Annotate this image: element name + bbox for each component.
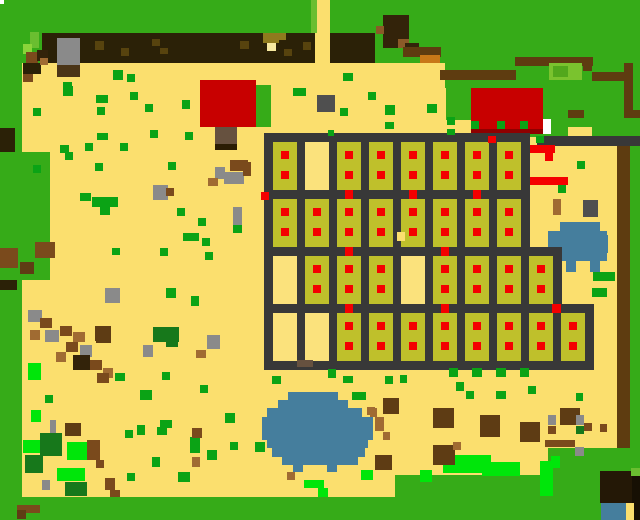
speck-gray [42, 480, 50, 490]
speck-neon [57, 468, 85, 481]
pond-east-3 [600, 235, 608, 253]
crop-plot-planted [497, 199, 521, 247]
crop-plot-empty [401, 256, 425, 304]
speck-neon [551, 456, 560, 468]
speck-weed [385, 105, 395, 115]
house-tree [256, 85, 271, 127]
grass-br-upper [548, 448, 640, 472]
speck-weed [63, 86, 73, 96]
speck-gray [575, 447, 584, 456]
crop [441, 265, 449, 273]
speck-dbrown [152, 39, 160, 46]
pond-east-4 [566, 261, 576, 272]
crop-plot-planted [369, 256, 393, 304]
crop-plot-empty [273, 256, 297, 304]
speck-dark [0, 128, 15, 152]
speck-weed [130, 92, 138, 100]
speck-weed [160, 248, 168, 256]
speck-brown [90, 360, 102, 370]
crop [313, 265, 321, 273]
speck-sand [397, 232, 405, 241]
crop-plot-planted [273, 142, 297, 190]
crop [409, 322, 417, 330]
path-sand-top [317, 0, 330, 33]
speck-weed [150, 130, 158, 138]
crop [409, 208, 417, 216]
speck-weed [100, 207, 110, 215]
speck-weed [385, 376, 393, 384]
crop [537, 285, 545, 293]
speck-brown [548, 426, 556, 434]
crop-plot-planted [497, 313, 521, 361]
speck-weed [352, 392, 366, 400]
crop [537, 265, 545, 273]
speck-dgray [317, 95, 335, 112]
speck-neon [482, 462, 520, 476]
crop [281, 208, 289, 216]
speck-weed [576, 393, 583, 401]
speck-gray [207, 335, 220, 349]
crop [377, 285, 385, 293]
speck-dark [0, 280, 17, 290]
speck-weed [466, 391, 474, 399]
speck-weed [166, 288, 176, 298]
speck-weed [152, 457, 160, 467]
speck-dbrown [284, 49, 292, 56]
speck-dirt [433, 408, 454, 428]
crop [537, 322, 545, 330]
speck-dgreen [166, 337, 178, 347]
speck-weed [198, 218, 206, 226]
speck-dirt [383, 398, 399, 414]
crop [505, 151, 513, 159]
speck-weed [185, 132, 193, 140]
speck-weed [97, 107, 105, 115]
crop [409, 228, 417, 236]
crop [377, 342, 385, 350]
crop-plot-planted [433, 142, 457, 190]
speck-pale [267, 43, 276, 51]
crop-plot-planted [369, 199, 393, 247]
crop [281, 171, 289, 179]
speck-weed [385, 122, 394, 129]
pond-south-5 [267, 440, 368, 448]
speck-weed [157, 427, 167, 435]
speck-weed [140, 390, 152, 400]
speck-dgreen [40, 433, 62, 456]
crop [473, 342, 481, 350]
speck-weed [592, 288, 607, 297]
speck-brown [23, 74, 33, 82]
speck-weed [456, 382, 464, 391]
speck-weed [207, 450, 217, 460]
speck-weed [96, 95, 108, 103]
crop-plot-planted [401, 142, 425, 190]
speck-weed [182, 100, 190, 109]
crop-plot-planted [465, 256, 489, 304]
path-sand-mid [315, 33, 330, 63]
pond-south-3 [267, 408, 362, 417]
speck-weed [255, 442, 265, 452]
speck-brown [0, 248, 18, 268]
speck-weed [520, 368, 529, 377]
crop-plot-planted [497, 142, 521, 190]
fence-g [633, 110, 640, 118]
speck-dbrown [121, 48, 129, 56]
speck-brown [66, 342, 78, 352]
speck-weed [137, 425, 145, 435]
speck-weed [496, 391, 506, 399]
speck-dirt [95, 326, 111, 341]
crop-drip [345, 190, 353, 199]
speck-dirt [20, 262, 34, 274]
crop [505, 322, 513, 330]
crop-drip [473, 190, 481, 199]
speck-brown [110, 490, 120, 497]
crop [441, 151, 449, 159]
crop-plot-empty [305, 142, 329, 190]
house-chimney [215, 127, 237, 144]
speck-dbrown [160, 48, 168, 54]
crop-plot-planted [561, 313, 585, 361]
speck-tan [192, 457, 200, 467]
crop-plot-planted [529, 256, 553, 304]
crop [505, 171, 513, 179]
speck-weed [115, 373, 125, 381]
crop [473, 208, 481, 216]
speck-gray [50, 420, 56, 433]
crop-drip [441, 247, 449, 256]
pond-south-4 [262, 417, 373, 440]
speck-weed [183, 233, 199, 241]
crop-plot-planted [401, 313, 425, 361]
crop [377, 208, 385, 216]
grass-left [0, 33, 22, 520]
crop-plot-planted [369, 142, 393, 190]
speck-tan [453, 442, 461, 450]
fence-d [583, 57, 592, 71]
speck-weed [85, 143, 93, 151]
pond-south-2 [278, 400, 348, 408]
crop [441, 322, 449, 330]
corner-dot [0, 0, 4, 4]
crop-plot-planted [305, 256, 329, 304]
speck-gray [105, 288, 120, 303]
speck-tan [383, 432, 390, 440]
speck-weed [449, 368, 458, 377]
grass-right [630, 146, 640, 472]
speck-brown [243, 162, 251, 176]
farm-map[interactable] [0, 0, 640, 520]
speck-weed [178, 472, 190, 482]
speck-olive [263, 33, 279, 43]
speck-dirt [433, 445, 455, 465]
speck-weed [92, 197, 118, 207]
speck-weed [293, 88, 306, 96]
speck-dirt [480, 415, 500, 437]
speck-weed [328, 130, 334, 136]
crop [473, 228, 481, 236]
pond-south-foot-1 [293, 465, 303, 472]
crop [345, 171, 353, 179]
speck-darkwood [73, 355, 90, 370]
speck-dgray [583, 200, 598, 217]
crop-plot-planted [273, 199, 297, 247]
speck-weed [127, 74, 135, 82]
speck-weed [162, 372, 170, 380]
speck-weed [113, 70, 123, 80]
house [200, 80, 256, 127]
fence-dash [568, 110, 584, 118]
speck-weed [80, 193, 91, 201]
crop-plot-planted [433, 199, 457, 247]
speck-weed [200, 385, 208, 393]
crop [505, 342, 513, 350]
sand-patch-right [568, 127, 592, 136]
speck-dbrown [240, 41, 249, 49]
speck-weed [205, 252, 213, 260]
speck-weed [496, 368, 506, 377]
crop-drip [345, 247, 353, 256]
crop-plot-planted [465, 313, 489, 361]
crop [505, 265, 513, 273]
speck-brown [192, 428, 202, 438]
speck-neon [28, 363, 41, 380]
crop [377, 228, 385, 236]
speck-gray [45, 330, 59, 342]
speck-weed [127, 473, 135, 481]
crop [441, 171, 449, 179]
crop-plot-planted [337, 199, 361, 247]
grass-bottom [22, 497, 640, 520]
crop-plot-planted [529, 313, 553, 361]
speck-dgreen [576, 426, 584, 434]
crop-plot-planted [305, 199, 329, 247]
speck-weed [471, 121, 479, 129]
statue-base [57, 65, 80, 77]
crop [377, 151, 385, 159]
crop [345, 151, 353, 159]
crop-plot-planted [369, 313, 393, 361]
speck-weed [225, 413, 235, 423]
barn [471, 88, 543, 129]
crop [345, 342, 353, 350]
speck-brown [584, 423, 592, 431]
trunk-branch-a [376, 26, 384, 34]
speck-neon [304, 480, 324, 488]
dark-soil-strip-east [330, 33, 375, 63]
speck-dirt [520, 422, 540, 442]
speck-tan [196, 350, 206, 358]
sand-wedge-a [375, 63, 445, 88]
speck-red [530, 177, 568, 185]
speck-olive [278, 33, 286, 40]
speck-brown [545, 440, 575, 447]
speck-weed [536, 136, 544, 143]
speck-red [488, 136, 496, 143]
crop [345, 228, 353, 236]
speck-gray [576, 415, 584, 425]
speck-chimney [297, 360, 313, 367]
cave-water [601, 503, 626, 520]
speck-dbrown [95, 41, 104, 50]
crop [281, 151, 289, 159]
speck-red [261, 192, 269, 200]
crop [441, 228, 449, 236]
speck-tan [287, 472, 295, 480]
crop-plot-planted [433, 313, 457, 361]
crop [377, 322, 385, 330]
speck-weed [95, 163, 103, 171]
speck-weed [177, 208, 185, 216]
speck-weed [427, 104, 437, 113]
speck-tan [375, 417, 384, 431]
speck-dgreen [25, 455, 43, 473]
speck-weed [125, 430, 133, 438]
speck-weed [558, 185, 566, 193]
crop [505, 208, 513, 216]
speck-brown [60, 326, 72, 336]
crop [377, 171, 385, 179]
speck-tan [30, 330, 40, 340]
speck-weed [112, 248, 120, 255]
speck-weed [202, 238, 210, 246]
speck-tan [208, 178, 218, 186]
cave-sand [626, 503, 634, 520]
bush-inner [553, 66, 568, 77]
speck-brown [40, 318, 52, 328]
crop [281, 228, 289, 236]
speck-red [552, 304, 561, 313]
crop [345, 322, 353, 330]
crop [377, 265, 385, 273]
crop-drip [441, 304, 449, 313]
speck-weed [33, 108, 41, 116]
crop-plot-planted [337, 142, 361, 190]
crop [313, 285, 321, 293]
speck-weed [343, 73, 353, 81]
crop-plot-planted [465, 142, 489, 190]
speck-neon [23, 440, 40, 453]
speck-weed [577, 161, 585, 169]
speck-tan [553, 199, 561, 215]
crop [409, 171, 417, 179]
speck-tan [56, 352, 66, 362]
crop [473, 322, 481, 330]
crop [409, 342, 417, 350]
speck-dgreen [65, 482, 87, 496]
speck-neon [318, 488, 328, 497]
speck-brown [600, 424, 607, 432]
crop [505, 285, 513, 293]
crop [441, 285, 449, 293]
speck-weed [528, 386, 536, 394]
speck-weed [97, 133, 108, 140]
speck-brown [166, 188, 174, 196]
speck-brown [105, 478, 115, 490]
speck-brown [97, 373, 109, 383]
pond-south-6 [272, 448, 365, 457]
fence-e [592, 72, 625, 81]
speck-weed [65, 152, 73, 160]
speck-weed [343, 376, 353, 383]
speck-weed [145, 104, 153, 112]
barn-door-white [543, 119, 551, 134]
speck-weed [447, 129, 455, 135]
crop [537, 342, 545, 350]
speck-dbrown [303, 42, 311, 50]
speck-tan [40, 58, 48, 65]
crop-plot-planted [465, 199, 489, 247]
crop [473, 285, 481, 293]
crop-drip [345, 304, 353, 313]
speck-weed [400, 375, 407, 383]
crop [473, 265, 481, 273]
speck-weed [497, 121, 505, 129]
speck-weed [520, 121, 528, 129]
speck-weed [168, 162, 176, 170]
crop [505, 228, 513, 236]
speck-neon [420, 470, 432, 482]
pond-south-7 [282, 457, 358, 465]
speck-gray [143, 345, 153, 357]
speck-dirt [375, 455, 392, 470]
crop-plot-planted [433, 256, 457, 304]
crop [409, 151, 417, 159]
crop [441, 342, 449, 350]
grass-bl-strip [395, 475, 545, 497]
speck-dark [23, 63, 41, 74]
speck-gray [233, 207, 242, 225]
speck-tan [73, 332, 85, 342]
speck-weed [230, 442, 238, 450]
speck-gray [224, 172, 244, 184]
crop [313, 208, 321, 216]
speck-weed [328, 369, 336, 378]
speck-weed [340, 108, 348, 116]
fence-f [624, 63, 633, 118]
crop-plot-planted [337, 256, 361, 304]
crop [345, 285, 353, 293]
crop [345, 265, 353, 273]
speck-weed [472, 368, 482, 377]
speck-weed [593, 272, 615, 281]
speck-brown [96, 460, 104, 468]
crop [345, 208, 353, 216]
speck-red [530, 145, 555, 153]
speck-neon [361, 470, 373, 480]
pond-south-foot-2 [327, 465, 337, 472]
crop [569, 322, 577, 330]
crop-plot-empty [273, 313, 297, 361]
crop [313, 228, 321, 236]
pond-south-1 [288, 392, 338, 400]
crop-plot-planted [497, 256, 521, 304]
crop-plot-empty [305, 313, 329, 361]
crop [569, 342, 577, 350]
fence-right [617, 146, 630, 448]
speck-weed [191, 296, 199, 306]
cave-lightgreen [631, 468, 640, 476]
speck-weed [120, 143, 128, 151]
speck-tan [370, 408, 377, 417]
speck-weed [190, 437, 200, 447]
fence-b [440, 70, 516, 80]
crop [441, 208, 449, 216]
speck-dirt [65, 423, 81, 436]
crop-drip [409, 190, 417, 199]
speck-brown [87, 440, 100, 460]
